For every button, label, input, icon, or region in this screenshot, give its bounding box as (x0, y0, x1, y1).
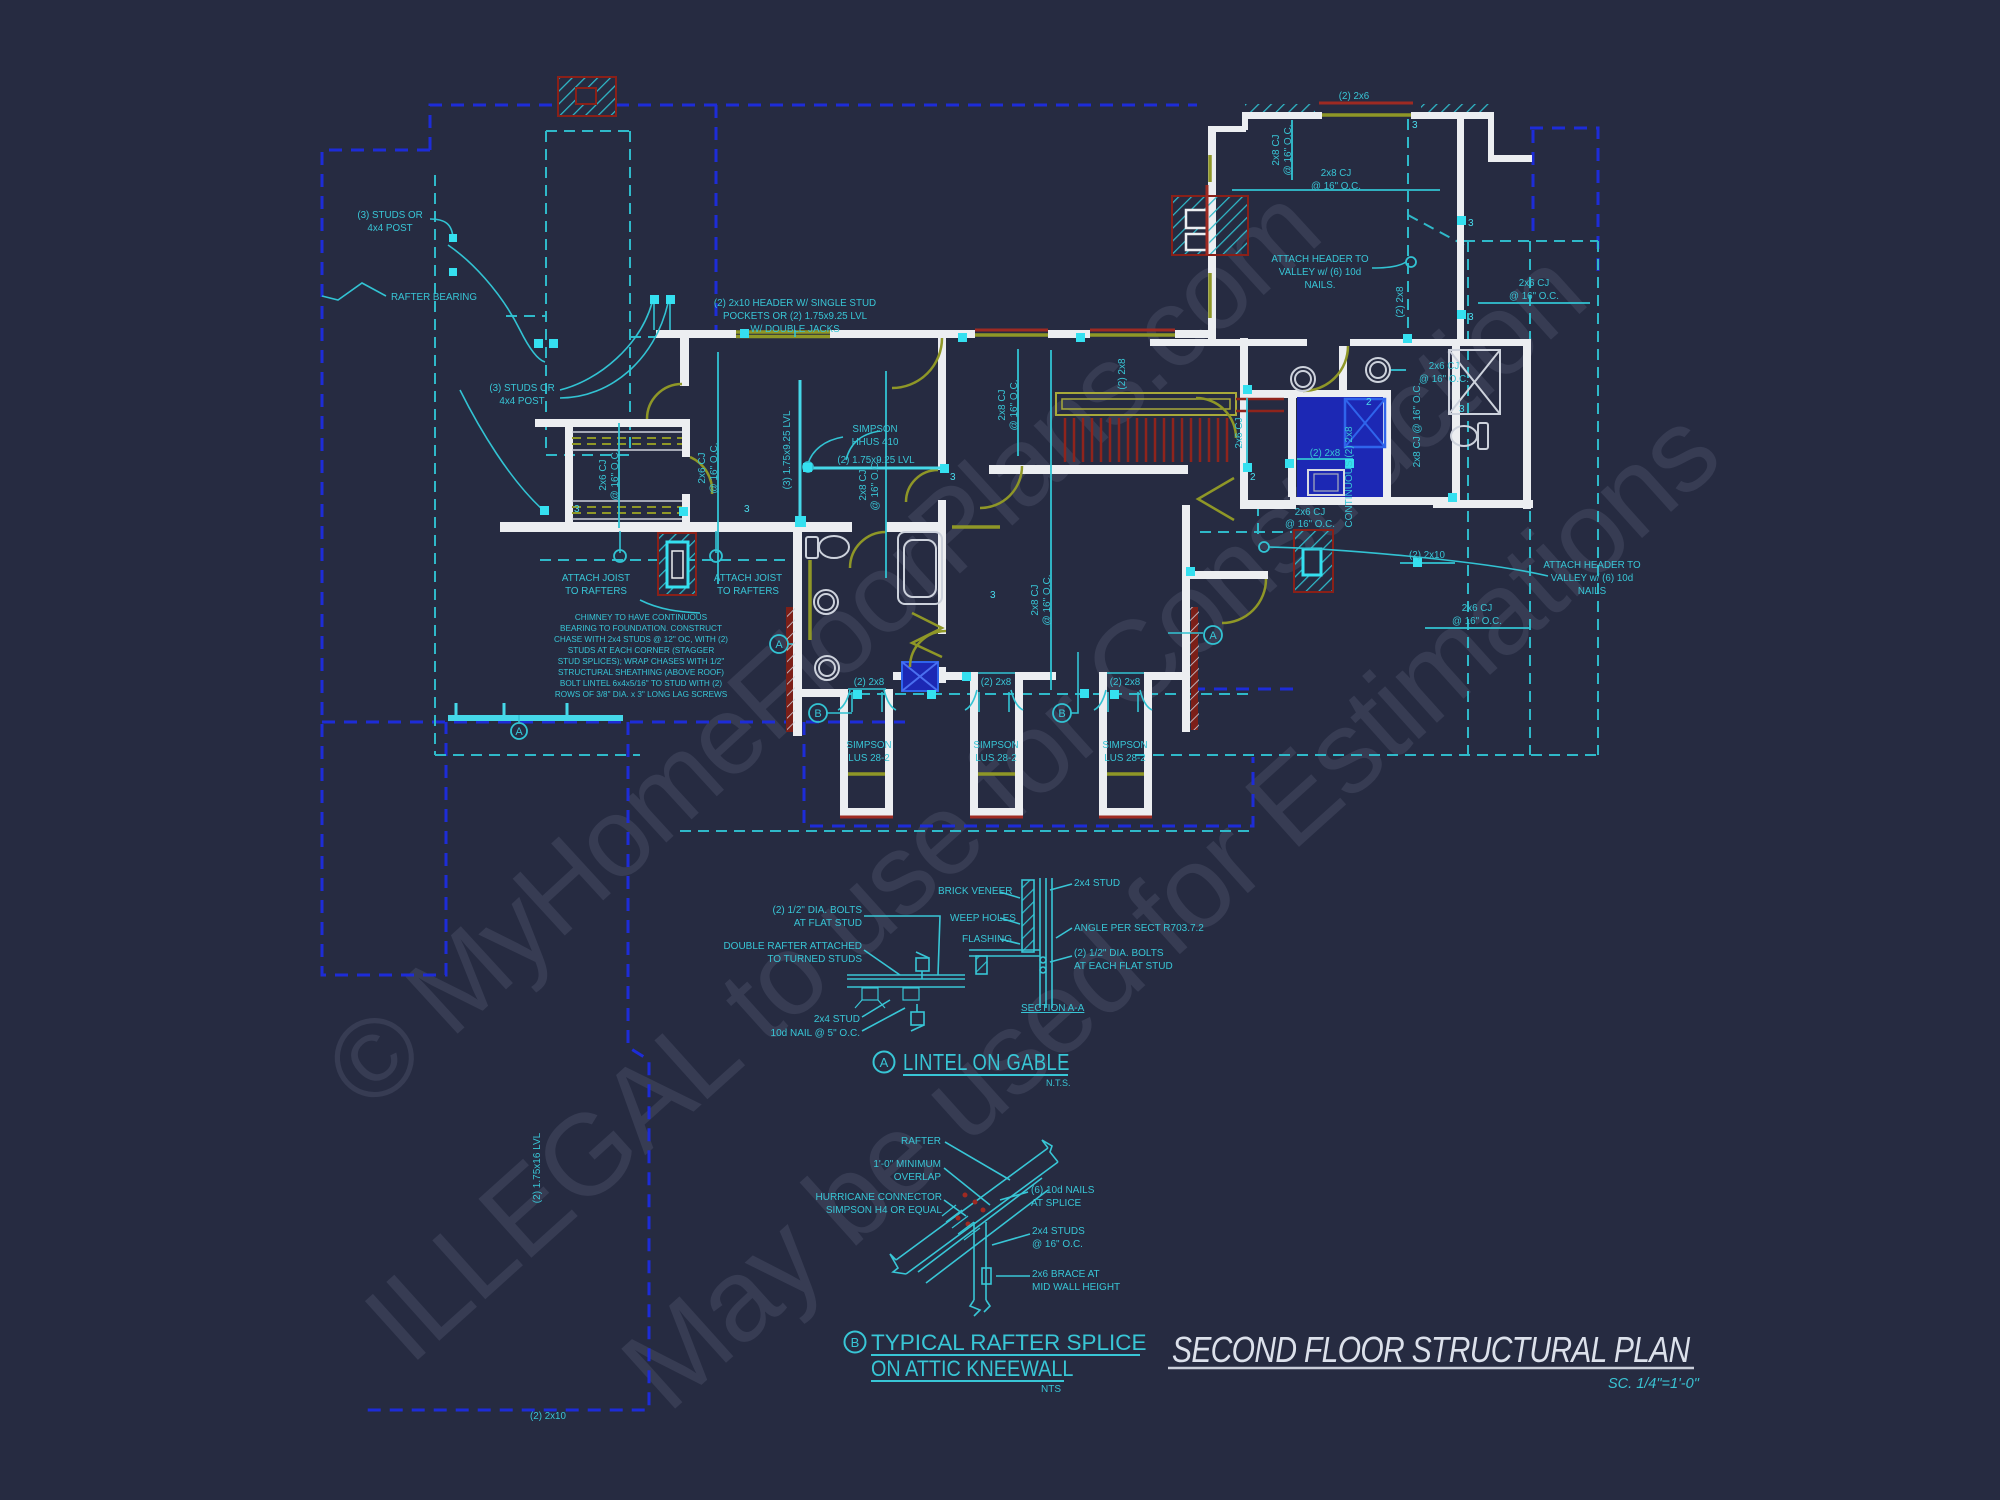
svg-text:SIMPSON: SIMPSON (973, 740, 1018, 751)
svg-text:2x8 CJ: 2x8 CJ (1030, 584, 1041, 615)
svg-text:(2) 2x8: (2) 2x8 (981, 677, 1012, 688)
svg-text:NAILS: NAILS (1578, 586, 1607, 597)
svg-text:BOLT LINTEL 6x4x5/16" TO STUD: BOLT LINTEL 6x4x5/16" TO STUD WITH (2) (560, 679, 722, 688)
svg-text:N.T.S.: N.T.S. (1046, 1078, 1071, 1088)
svg-text:@ 16" O.C.: @ 16" O.C. (1009, 380, 1020, 431)
svg-text:(2) 2x8: (2) 2x8 (854, 677, 885, 688)
svg-text:ATTACH JOIST: ATTACH JOIST (562, 573, 630, 584)
svg-text:SECTION A-A: SECTION A-A (1021, 1003, 1085, 1014)
svg-text:LUS 28-2: LUS 28-2 (848, 753, 889, 764)
svg-text:@ 16" O.C.: @ 16" O.C. (1285, 519, 1335, 530)
svg-text:(2) 1/2" DIA. BOLTS: (2) 1/2" DIA. BOLTS (1074, 948, 1164, 959)
svg-text:LUS 28-2: LUS 28-2 (975, 753, 1016, 764)
svg-text:(2) 2x10: (2) 2x10 (1409, 550, 1445, 561)
svg-text:W/ DOUBLE JACKS: W/ DOUBLE JACKS (750, 324, 840, 335)
svg-text:STUDS AT EACH CORNER (STAGGER: STUDS AT EACH CORNER (STAGGER (568, 646, 715, 655)
svg-text:@ 16" O.C.: @ 16" O.C. (1509, 291, 1559, 302)
svg-text:10d NAIL @ 5" O.C.: 10d NAIL @ 5" O.C. (771, 1028, 860, 1039)
svg-text:3: 3 (574, 504, 580, 515)
svg-text:(2) 1/2" DIA. BOLTS: (2) 1/2" DIA. BOLTS (772, 905, 862, 916)
svg-text:2x4 STUD: 2x4 STUD (1074, 878, 1120, 889)
svg-text:(2) 2x10 HEADER W/ SINGLE STUD: (2) 2x10 HEADER W/ SINGLE STUD (714, 298, 876, 309)
svg-text:VALLEY w/ (6) 10d: VALLEY w/ (6) 10d (1551, 573, 1633, 584)
svg-text:@ 16" O.C.: @ 16" O.C. (709, 443, 720, 494)
svg-text:SIMPSON: SIMPSON (852, 424, 897, 435)
svg-text:@ 16" O.C.: @ 16" O.C. (610, 450, 621, 501)
svg-text:B: B (851, 1335, 860, 1350)
svg-text:NTS: NTS (1041, 1384, 1061, 1395)
svg-text:@ 16" O.C.: @ 16" O.C. (1452, 616, 1502, 627)
svg-text:ANGLE PER SECT R703.7.2: ANGLE PER SECT R703.7.2 (1074, 923, 1204, 934)
svg-text:B: B (814, 708, 821, 720)
svg-text:TYPICAL RAFTER SPLICE: TYPICAL RAFTER SPLICE (871, 1330, 1146, 1355)
svg-text:@ 16" O.C.: @ 16" O.C. (1042, 575, 1053, 626)
svg-text:2x6 CJ: 2x6 CJ (1462, 603, 1493, 614)
svg-text:3: 3 (744, 504, 750, 515)
svg-text:SIMPSON: SIMPSON (846, 740, 891, 751)
svg-text:(3) STUDS OR: (3) STUDS OR (489, 383, 554, 394)
svg-text:(2) 2x10: (2) 2x10 (530, 1411, 566, 1422)
svg-text:@ 16" O.C.: @ 16" O.C. (1032, 1239, 1083, 1250)
svg-text:SIMPSON H4 OR EQUAL: SIMPSON H4 OR EQUAL (826, 1205, 943, 1216)
svg-text:NAILS.: NAILS. (1304, 280, 1335, 291)
svg-text:STUD SPLICES); WRAP CHASES WIT: STUD SPLICES); WRAP CHASES WITH 1/2" (558, 657, 725, 666)
svg-text:4x4 POST: 4x4 POST (367, 223, 412, 234)
svg-text:2x8 CJ @ 16" O.C.: 2x8 CJ @ 16" O.C. (1412, 383, 1423, 468)
svg-text:3: 3 (1412, 120, 1418, 131)
svg-text:WEEP HOLES: WEEP HOLES (950, 913, 1016, 924)
svg-text:(2) 2x8: (2) 2x8 (1310, 448, 1341, 459)
svg-text:(2) 2x6: (2) 2x6 (1339, 91, 1370, 102)
svg-text:B: B (1058, 708, 1065, 720)
svg-text:1'-0" MINIMUM: 1'-0" MINIMUM (873, 1159, 941, 1170)
svg-text:A: A (880, 1055, 889, 1070)
svg-text:HURRICANE CONNECTOR: HURRICANE CONNECTOR (816, 1192, 943, 1203)
svg-text:3: 3 (1468, 218, 1474, 229)
svg-text:ON ATTIC KNEEWALL: ON ATTIC KNEEWALL (871, 1357, 1074, 1381)
svg-text:2x6 CJ: 2x6 CJ (598, 459, 609, 490)
svg-text:CHASE WITH 2x4 STUDS @ 12" OC,: CHASE WITH 2x4 STUDS @ 12" OC, WITH (2) (554, 635, 728, 644)
svg-text:VALLEY w/ (6) 10d: VALLEY w/ (6) 10d (1279, 267, 1361, 278)
svg-text:SIMPSON: SIMPSON (1102, 740, 1147, 751)
svg-text:LINTEL ON GABLE: LINTEL ON GABLE (903, 1050, 1070, 1075)
svg-text:(3) 1.75x9.25 LVL: (3) 1.75x9.25 LVL (782, 410, 793, 489)
svg-text:@ 16" O.C.: @ 16" O.C. (870, 460, 881, 511)
svg-text:SC. 1/4"=1'-0": SC. 1/4"=1'-0" (1608, 1376, 1700, 1392)
svg-text:MID WALL HEIGHT: MID WALL HEIGHT (1032, 1282, 1120, 1293)
svg-text:2x4 STUD: 2x4 STUD (814, 1014, 860, 1025)
svg-text:ATTACH JOIST: ATTACH JOIST (714, 573, 782, 584)
svg-text:@ 16" O.C.: @ 16" O.C. (1419, 374, 1469, 385)
svg-text:OVERLAP: OVERLAP (894, 1172, 942, 1183)
svg-text:2: 2 (1366, 397, 1372, 408)
svg-text:BEARING TO FOUNDATION. CONSTRU: BEARING TO FOUNDATION. CONSTRUCT (560, 624, 722, 633)
svg-text:CONTINUOUS (2) 2x8: CONTINUOUS (2) 2x8 (1344, 426, 1355, 528)
svg-text:(2) 2x8: (2) 2x8 (1110, 677, 1141, 688)
svg-text:POCKETS OR (2) 1.75x9.25 LVL: POCKETS OR (2) 1.75x9.25 LVL (723, 311, 868, 322)
svg-text:2x6 CJ: 2x6 CJ (697, 452, 708, 483)
svg-text:2x8 CJ: 2x8 CJ (1321, 168, 1352, 179)
svg-text:3: 3 (1468, 312, 1474, 323)
svg-text:FLASHING: FLASHING (962, 934, 1012, 945)
svg-text:2x6 CJ: 2x6 CJ (1519, 278, 1550, 289)
svg-text:AT EACH FLAT STUD: AT EACH FLAT STUD (1074, 961, 1173, 972)
svg-text:2x6 CJ: 2x6 CJ (1295, 507, 1326, 518)
svg-text:AT FLAT STUD: AT FLAT STUD (794, 918, 862, 929)
svg-text:2x8 CJ: 2x8 CJ (1271, 134, 1282, 165)
svg-text:RAFTER: RAFTER (901, 1136, 941, 1147)
svg-text:HHUS 410: HHUS 410 (852, 437, 899, 448)
svg-text:(2) 2x8: (2) 2x8 (1395, 286, 1406, 318)
svg-text:LUS 28-2: LUS 28-2 (1104, 753, 1145, 764)
svg-text:DOUBLE RAFTER ATTACHED: DOUBLE RAFTER ATTACHED (723, 941, 862, 952)
svg-text:STRUCTURAL SHEATHING (ABOVE RO: STRUCTURAL SHEATHING (ABOVE ROOF) (558, 668, 724, 677)
svg-text:2x4 STUDS: 2x4 STUDS (1032, 1226, 1085, 1237)
svg-text:ATTACH HEADER TO: ATTACH HEADER TO (1543, 560, 1641, 571)
svg-text:(2) 1.75x16 LVL: (2) 1.75x16 LVL (532, 1132, 543, 1203)
svg-text:TO RAFTERS: TO RAFTERS (717, 586, 779, 597)
svg-text:3: 3 (990, 590, 996, 601)
svg-text:@ 16" O.C.: @ 16" O.C. (1311, 181, 1361, 192)
svg-text:(6) 10d NAILS: (6) 10d NAILS (1031, 1185, 1095, 1196)
svg-text:SECOND FLOOR STRUCTURAL PLAN: SECOND FLOOR STRUCTURAL PLAN (1172, 1330, 1691, 1370)
svg-text:A: A (1209, 630, 1217, 642)
svg-text:ROWS OF 3/8" DIA. x 3" LONG LA: ROWS OF 3/8" DIA. x 3" LONG LAG SCREWS (555, 690, 728, 699)
svg-text:ATTACH HEADER TO: ATTACH HEADER TO (1271, 254, 1369, 265)
svg-text:2x6 CJ: 2x6 CJ (1234, 417, 1245, 448)
svg-text:(3) STUDS OR: (3) STUDS OR (357, 210, 422, 221)
svg-text:CHIMNEY TO HAVE CONTINUOUS: CHIMNEY TO HAVE CONTINUOUS (575, 613, 708, 622)
svg-text:A: A (775, 639, 783, 651)
svg-text:TO TURNED STUDS: TO TURNED STUDS (767, 954, 862, 965)
svg-text:BRICK VENEER: BRICK VENEER (938, 886, 1012, 897)
svg-text:4x4 POST: 4x4 POST (499, 396, 544, 407)
svg-text:TO RAFTERS: TO RAFTERS (565, 586, 627, 597)
svg-text:2x6 CJ: 2x6 CJ (1429, 361, 1460, 372)
svg-text:3: 3 (950, 472, 956, 483)
svg-text:2x6 BRACE AT: 2x6 BRACE AT (1032, 1269, 1100, 1280)
svg-text:3: 3 (1459, 404, 1465, 415)
svg-text:A: A (515, 726, 523, 738)
svg-text:(2) 2x8: (2) 2x8 (1117, 358, 1128, 390)
svg-text:@ 16" O.C.: @ 16" O.C. (1283, 125, 1294, 176)
svg-text:AT SPLICE: AT SPLICE (1031, 1198, 1082, 1209)
svg-text:2x8 CJ: 2x8 CJ (997, 389, 1008, 420)
svg-text:2: 2 (1250, 472, 1256, 483)
svg-text:2x8 CJ: 2x8 CJ (858, 469, 869, 500)
svg-text:RAFTER BEARING: RAFTER BEARING (391, 292, 477, 303)
